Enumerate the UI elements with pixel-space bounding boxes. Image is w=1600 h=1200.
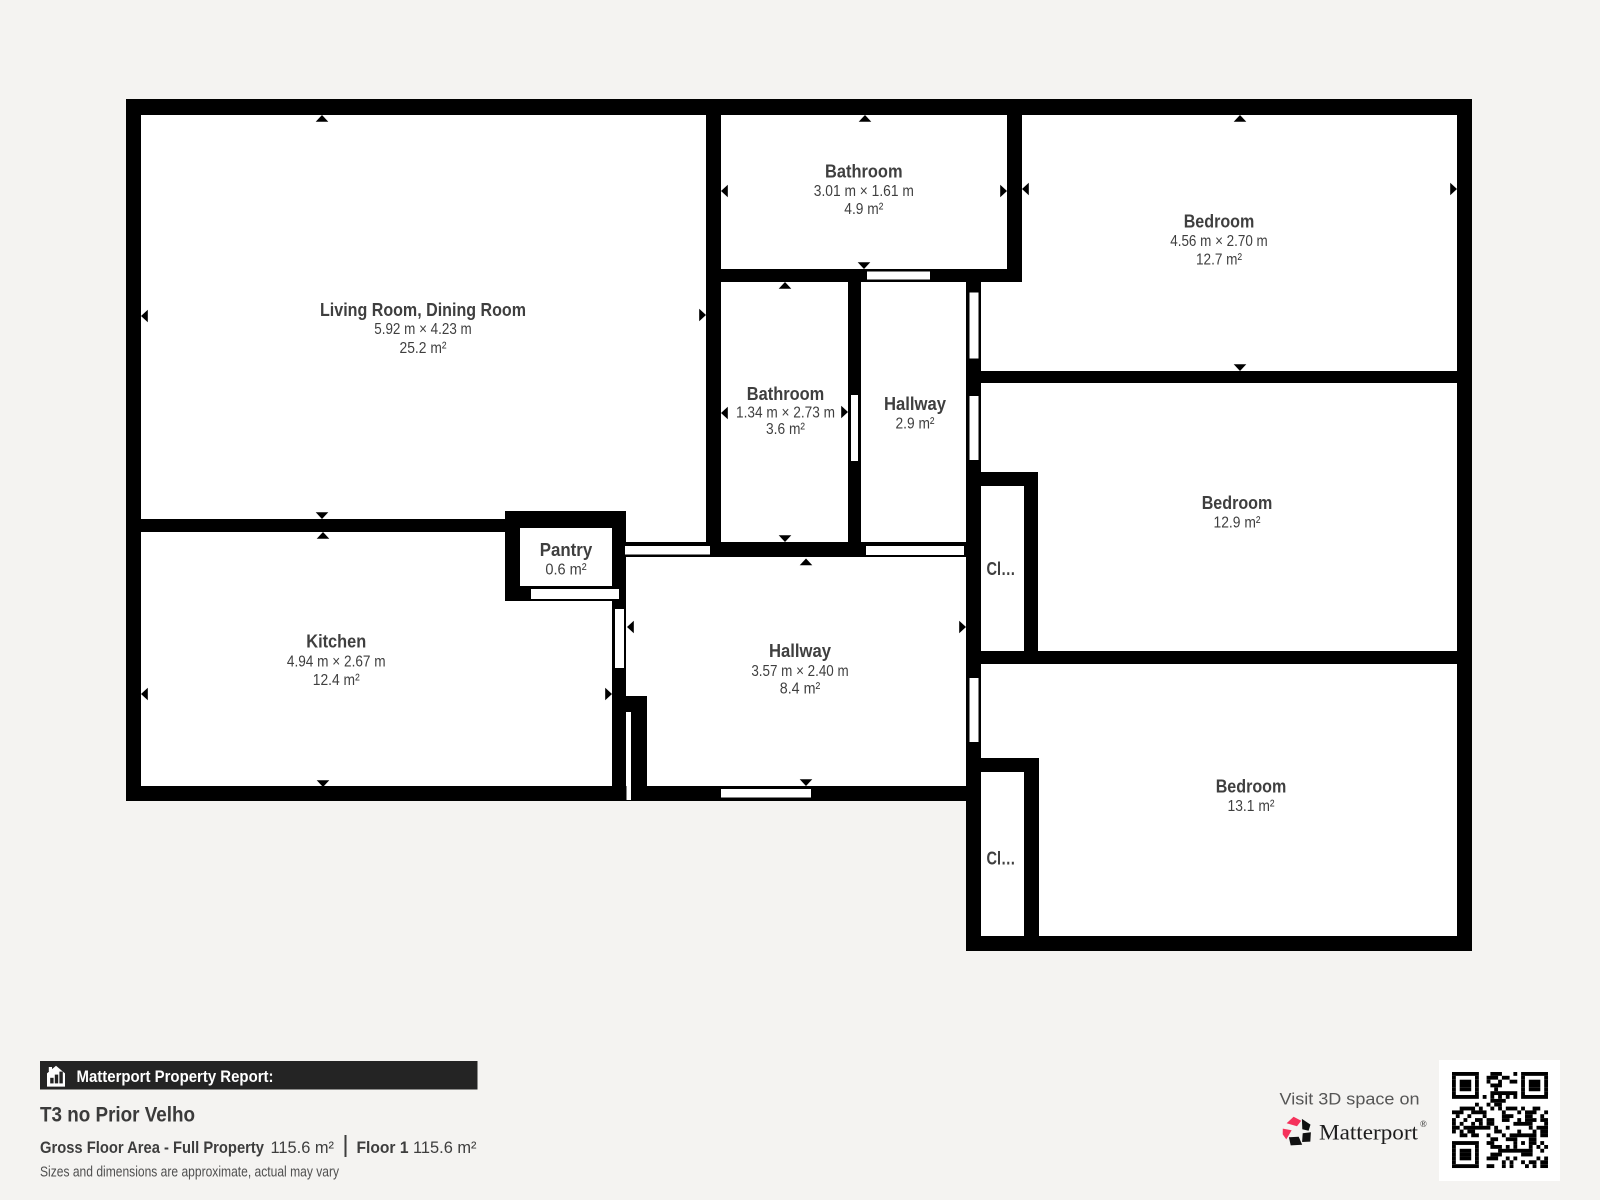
svg-text:8.4 m²: 8.4 m² — [780, 681, 821, 698]
svg-text:®: ® — [1420, 1119, 1427, 1129]
svg-text:4.56 m × 2.70 m: 4.56 m × 2.70 m — [1170, 233, 1268, 250]
svg-text:13.1 m²: 13.1 m² — [1228, 798, 1276, 815]
svg-text:Bedroom: Bedroom — [1216, 777, 1287, 797]
svg-text:12.4 m²: 12.4 m² — [313, 672, 360, 689]
svg-text:115.6 m²: 115.6 m² — [271, 1138, 335, 1157]
svg-text:12.9 m²: 12.9 m² — [1214, 515, 1262, 532]
svg-text:Hallway: Hallway — [769, 641, 831, 661]
svg-text:3.57 m × 2.40 m: 3.57 m × 2.40 m — [751, 663, 848, 680]
svg-text:115.6 m²: 115.6 m² — [413, 1138, 477, 1157]
svg-text:Bedroom: Bedroom — [1184, 212, 1255, 232]
svg-text:2.9 m²: 2.9 m² — [896, 416, 936, 433]
svg-text:Matterport Property Report:: Matterport Property Report: — [77, 1067, 274, 1086]
svg-text:Pantry: Pantry — [540, 540, 593, 560]
svg-text:Bathroom: Bathroom — [825, 162, 903, 182]
svg-text:Living Room, Dining Room: Living Room, Dining Room — [320, 300, 526, 320]
svg-text:3.01 m × 1.61 m: 3.01 m × 1.61 m — [814, 183, 914, 200]
svg-text:12.7 m²: 12.7 m² — [1196, 251, 1243, 268]
svg-text:Bedroom: Bedroom — [1202, 493, 1273, 513]
svg-text:1.34 m × 2.73 m: 1.34 m × 2.73 m — [736, 405, 835, 422]
svg-text:Floor 1: Floor 1 — [357, 1138, 409, 1157]
svg-text:Kitchen: Kitchen — [306, 632, 366, 652]
svg-text:4.94 m × 2.67 m: 4.94 m × 2.67 m — [287, 653, 386, 670]
svg-text:Matterport: Matterport — [1319, 1120, 1418, 1145]
svg-text:4.9 m²: 4.9 m² — [844, 201, 884, 218]
svg-text:Sizes and dimensions are appro: Sizes and dimensions are approximate, ac… — [40, 1164, 339, 1181]
svg-text:T3 no Prior Velho: T3 no Prior Velho — [40, 1104, 195, 1127]
svg-text:Cl…: Cl… — [987, 849, 1016, 869]
svg-text:Cl…: Cl… — [987, 559, 1016, 579]
svg-text:Visit 3D space on: Visit 3D space on — [1280, 1090, 1420, 1109]
svg-text:25.2 m²: 25.2 m² — [400, 340, 448, 357]
svg-text:5.92 m × 4.23 m: 5.92 m × 4.23 m — [374, 321, 472, 338]
svg-text:3.6 m²: 3.6 m² — [766, 421, 806, 438]
svg-text:0.6 m²: 0.6 m² — [545, 561, 587, 578]
svg-text:Hallway: Hallway — [884, 394, 946, 414]
svg-text:Bathroom: Bathroom — [747, 384, 825, 404]
svg-text:Gross Floor Area - Full Proper: Gross Floor Area - Full Property — [40, 1138, 264, 1157]
